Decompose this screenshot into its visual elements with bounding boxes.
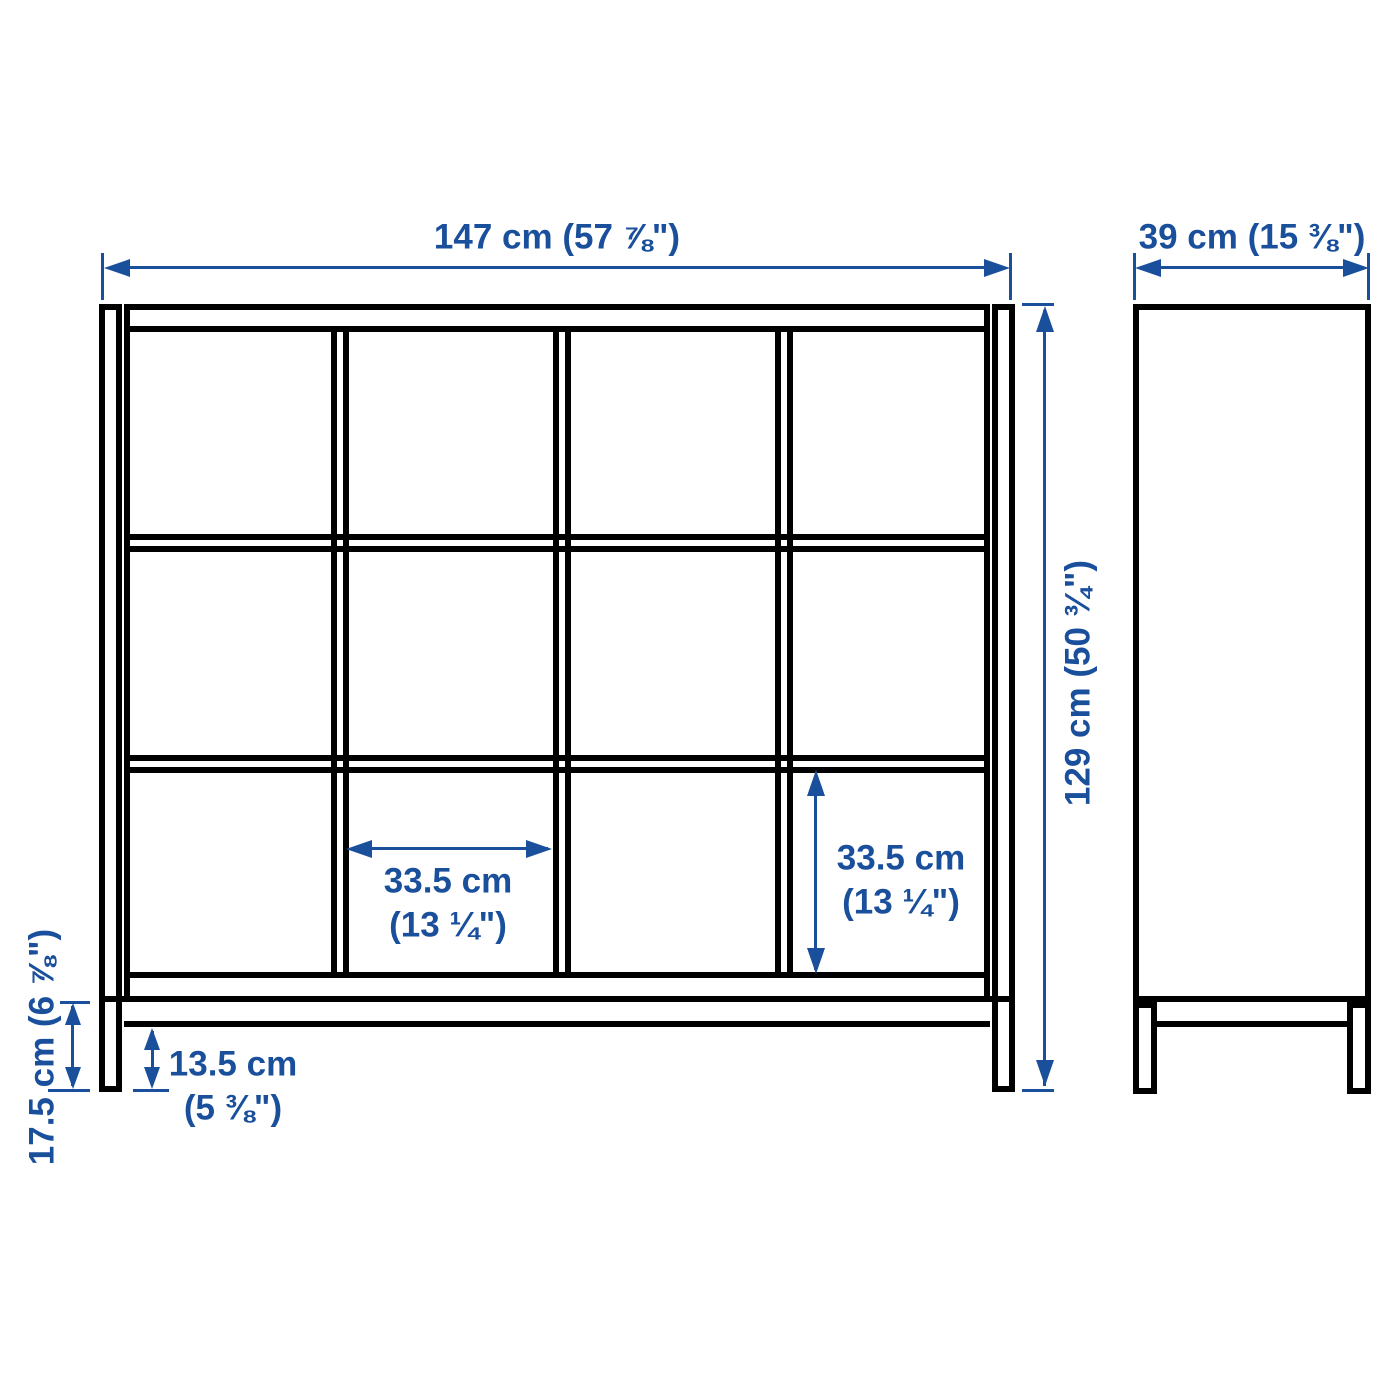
arrow-down-icon <box>144 1067 160 1089</box>
vertical-divider <box>331 332 337 972</box>
arrow-left-icon <box>1135 259 1161 277</box>
underframe-clearance-label-inch: (5 ⅜") <box>184 1091 282 1126</box>
side-panel-outline <box>1133 304 1371 1002</box>
overall-height-label: 129 cm (50 ¾") <box>1061 560 1096 806</box>
arrow-right-icon <box>526 840 552 858</box>
extension-tick <box>133 1089 169 1092</box>
front-bottom-panel-line <box>130 972 984 978</box>
arrow-up-icon <box>807 770 825 796</box>
side-underframe-front-leg <box>1133 1002 1157 1094</box>
arrow-down-icon <box>1036 1060 1054 1086</box>
front-underframe-right-post <box>992 304 1015 1092</box>
side-underframe-back-leg <box>1347 1002 1371 1094</box>
extension-tick <box>1022 1089 1054 1092</box>
front-underframe-left-post <box>99 304 122 1092</box>
dimension-line <box>352 847 548 850</box>
furniture-dimension-diagram: 147 cm (57 ⅞") 39 cm (15 ⅜") 129 cm (50 … <box>0 0 1400 1400</box>
vertical-divider <box>343 332 349 972</box>
arrow-right-icon <box>1343 259 1369 277</box>
horizontal-divider <box>130 534 984 540</box>
cell-width-label-cm: 33.5 cm <box>384 864 512 899</box>
arrow-left-icon <box>346 840 372 858</box>
arrow-up-icon <box>65 1003 81 1025</box>
horizontal-divider <box>130 755 984 761</box>
vertical-divider <box>565 332 571 972</box>
front-underframe-rail-line <box>124 1021 990 1027</box>
underframe-clearance-label-cm: 13.5 cm <box>169 1047 297 1082</box>
dimension-line <box>1043 310 1046 1086</box>
arrow-up-icon <box>1036 306 1054 332</box>
dimension-line <box>814 776 817 970</box>
arrow-left-icon <box>104 259 130 277</box>
arrow-down-icon <box>807 948 825 974</box>
underframe-height-label: 17.5 cm (6 ⅞") <box>25 929 60 1165</box>
vertical-divider <box>787 332 793 972</box>
arrow-down-icon <box>65 1067 81 1089</box>
arrow-right-icon <box>984 259 1010 277</box>
cell-height-label-cm: 33.5 cm <box>837 841 965 876</box>
arrow-up-icon <box>144 1028 160 1050</box>
horizontal-divider <box>130 546 984 552</box>
cell-width-label-inch: (13 ¼") <box>389 908 507 943</box>
dimension-line <box>1140 266 1364 269</box>
vertical-divider <box>775 332 781 972</box>
overall-depth-label: 39 cm (15 ⅜") <box>1139 220 1366 255</box>
horizontal-divider <box>130 767 984 773</box>
dimension-line <box>110 266 1004 269</box>
overall-width-label: 147 cm (57 ⅞") <box>434 220 680 255</box>
side-underframe-rail-line <box>1157 1021 1347 1027</box>
vertical-divider <box>553 332 559 972</box>
cell-height-label-inch: (13 ¼") <box>842 885 960 920</box>
front-underframe-joint-line <box>99 996 1015 1002</box>
